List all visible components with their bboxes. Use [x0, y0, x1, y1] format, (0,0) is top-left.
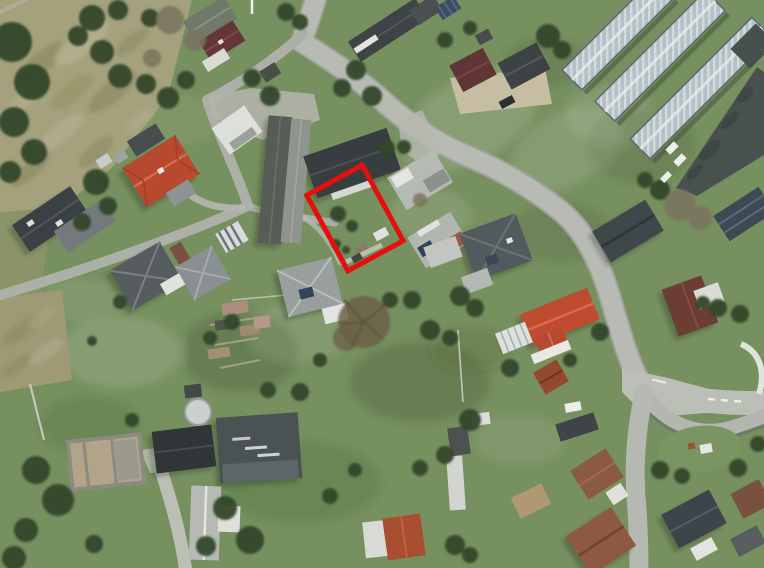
- road-branch-right: [648, 392, 764, 403]
- large-flat-dark-building: [216, 412, 302, 484]
- aerial-photo-canvas: [0, 0, 764, 568]
- ruin-building: [68, 434, 145, 489]
- aerial-photo: [0, 0, 764, 568]
- dark-house-south: [152, 425, 217, 474]
- red-roof-house-bottom: [382, 514, 425, 561]
- round-silo: [185, 399, 211, 425]
- road-branch-down: [635, 394, 644, 568]
